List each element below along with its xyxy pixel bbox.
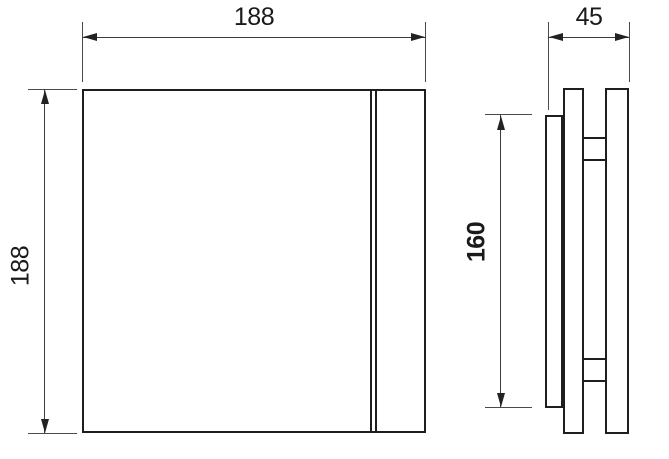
dim-front-height-ext-line-top: [28, 89, 77, 90]
dim-side-depth-arrow-right: [615, 33, 629, 41]
dim-side-inner-height-ext-line-top: [485, 114, 532, 115]
dim-side-depth-label: 45: [548, 5, 630, 30]
dim-front-width-label: 188: [82, 5, 426, 30]
dim-front-height-arrow-bottom: [41, 419, 49, 433]
side-view-upper-clip: [583, 137, 606, 161]
dim-front-height-ext-line-bottom: [28, 433, 77, 434]
dim-front-width-ext-line-right: [425, 22, 426, 82]
side-view-lower-clip: [583, 358, 606, 382]
dim-front-width-ext-line-left: [82, 22, 83, 82]
technical-drawing-canvas: 188 188 45 160: [0, 0, 669, 459]
side-view-front-panel-bar: [605, 88, 629, 434]
dim-side-inner-height-arrow-bottom: [497, 393, 505, 407]
front-panel-groove-line-left: [370, 91, 372, 431]
dim-side-depth-arrow-left: [549, 33, 563, 41]
side-view-body-bar: [563, 88, 584, 434]
dim-side-depth-ext-line-right: [629, 22, 630, 82]
dim-side-inner-height-line: [500, 115, 501, 407]
side-view-back-flange: [545, 115, 563, 408]
dim-front-width-arrow-left: [83, 33, 97, 41]
dim-front-height-label: 188: [9, 246, 34, 286]
dim-front-width-line: [82, 37, 426, 38]
dim-side-inner-height-label: 160: [465, 222, 490, 262]
dim-side-inner-height-ext-line-bottom: [485, 407, 532, 408]
dim-front-height-line: [44, 89, 45, 433]
dim-front-width-arrow-right: [411, 33, 425, 41]
dim-front-height-arrow-top: [41, 90, 49, 104]
front-panel-groove-line-right: [375, 91, 377, 431]
dim-side-inner-height-arrow-top: [497, 116, 505, 130]
